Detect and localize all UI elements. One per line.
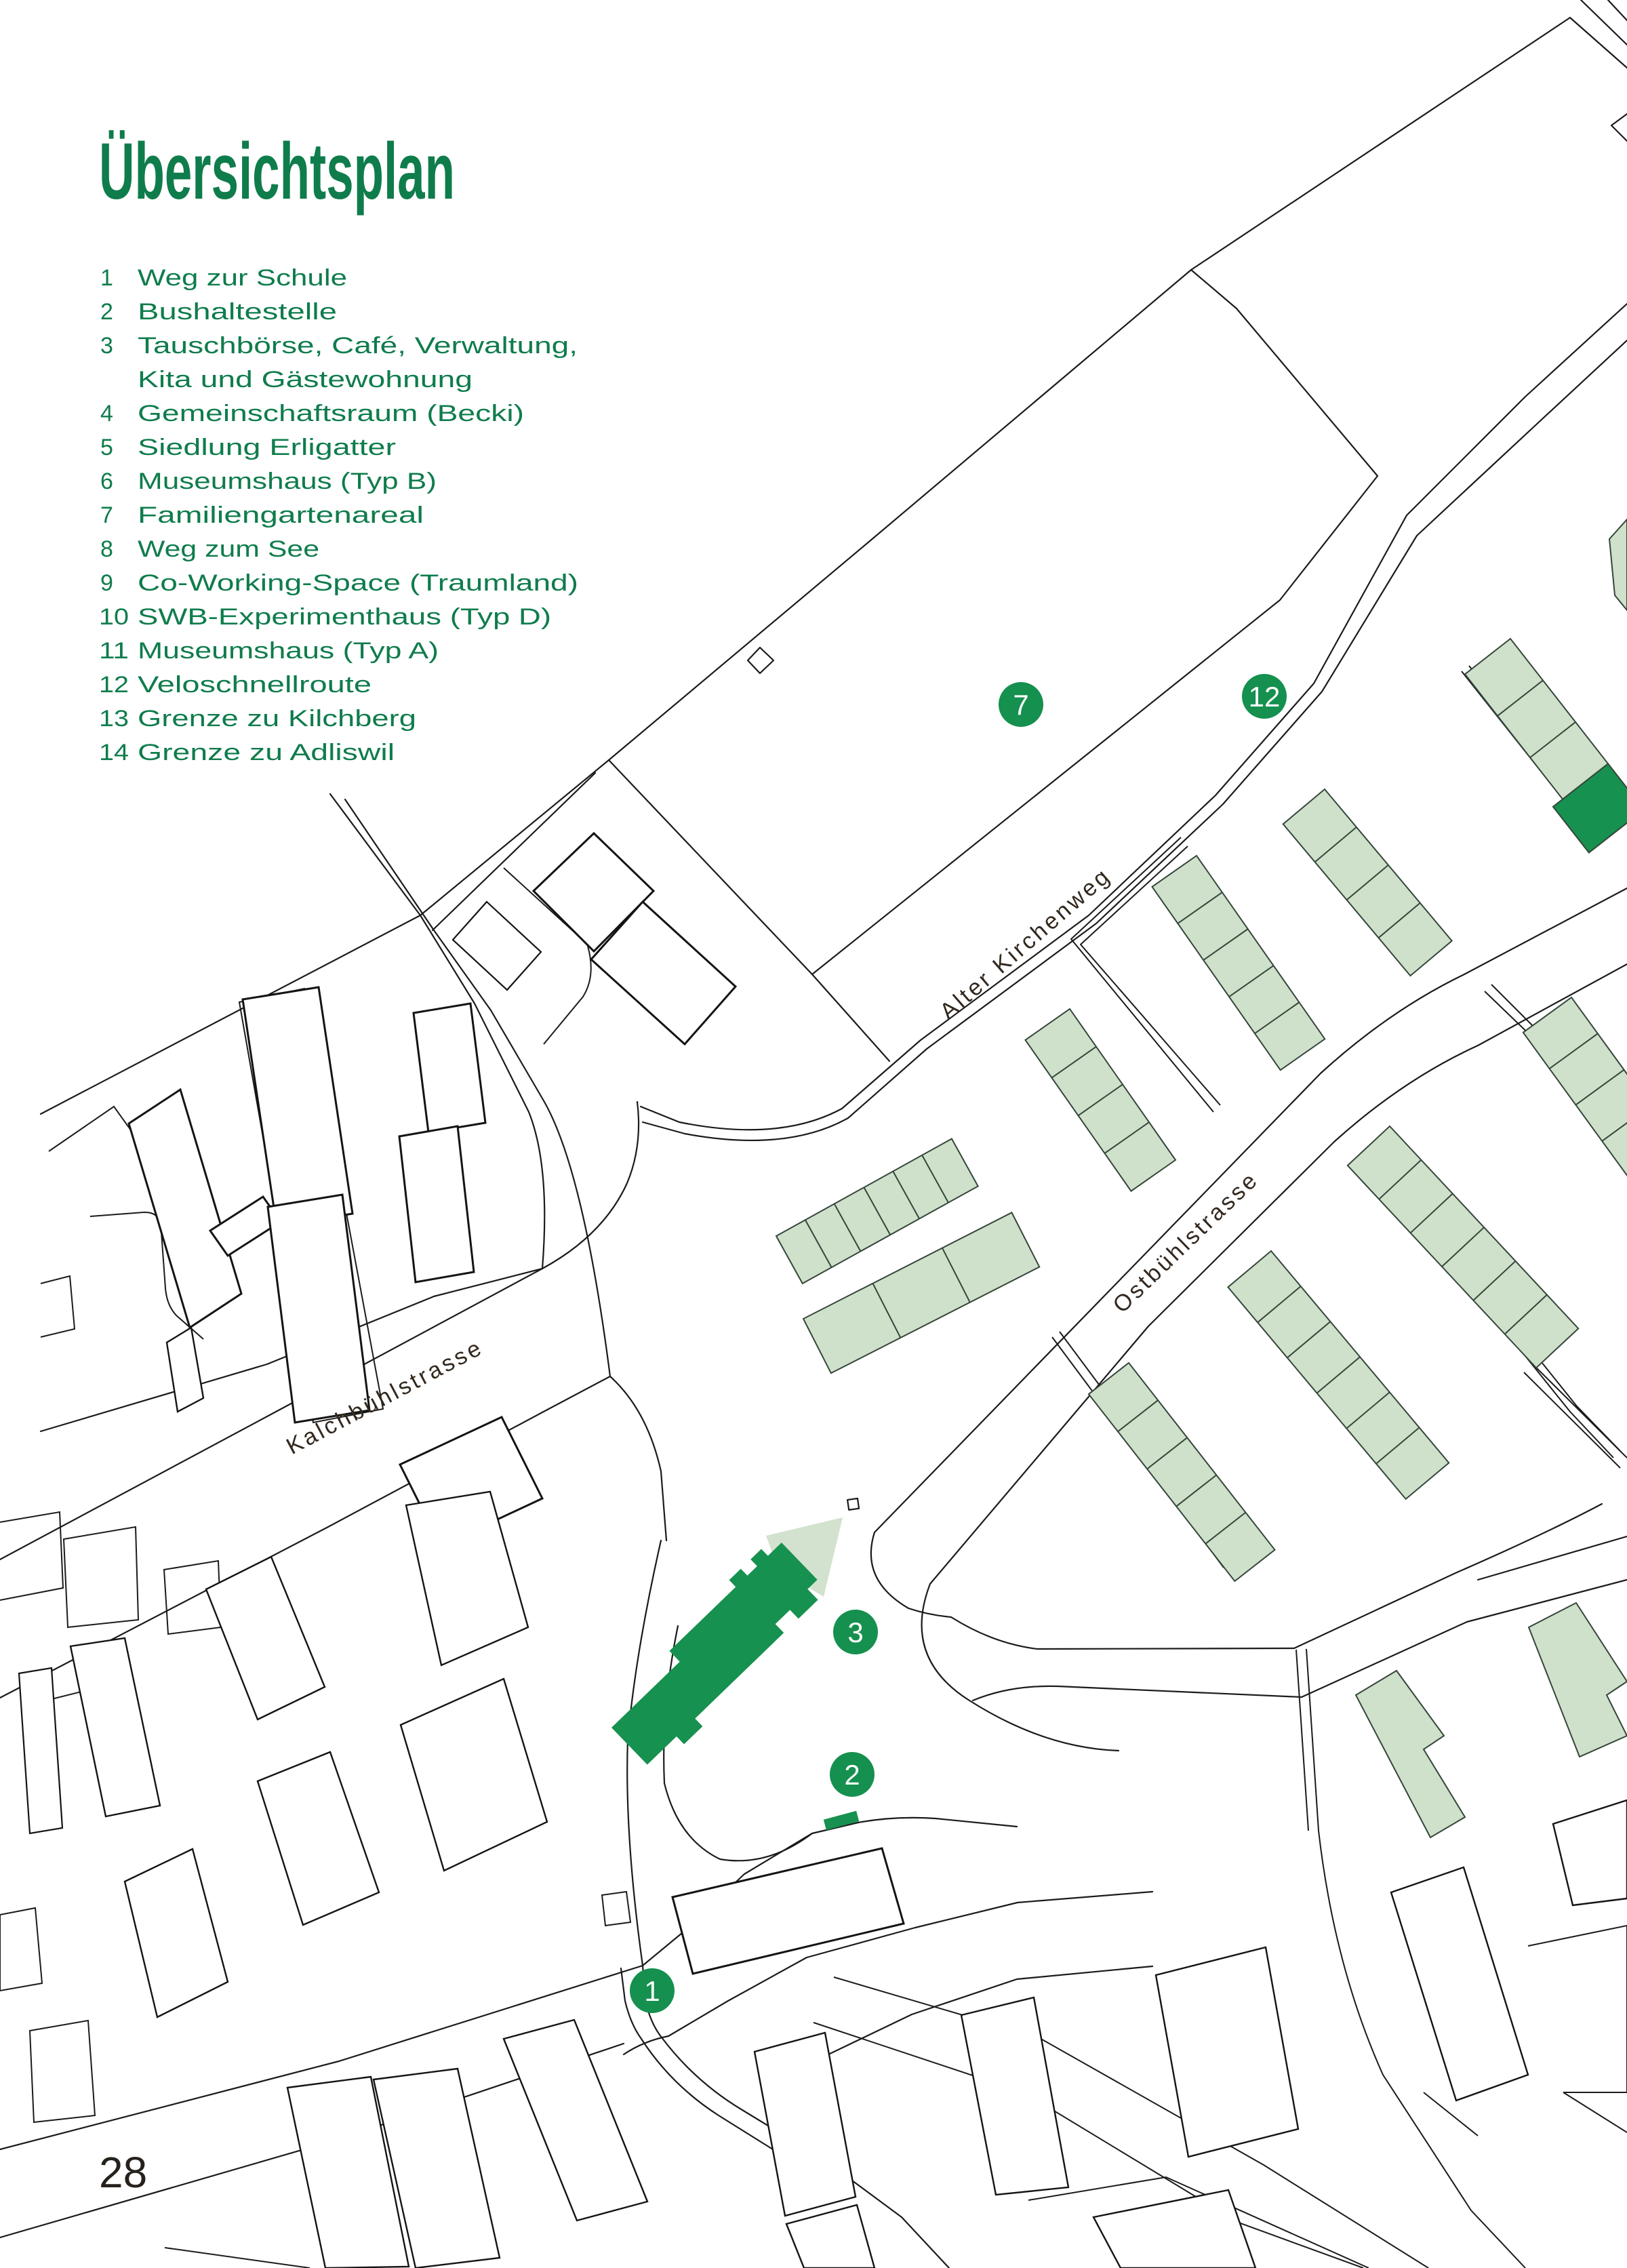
svg-text:Grenze zu Kilchberg: Grenze zu Kilchberg: [138, 706, 416, 732]
svg-text:Weg zur Schule: Weg zur Schule: [138, 265, 347, 291]
svg-text:7: 7: [1013, 689, 1028, 721]
svg-text:5: 5: [100, 435, 113, 460]
svg-text:SWB-Experimenthaus (Typ D): SWB-Experimenthaus (Typ D): [138, 604, 551, 630]
svg-text:10: 10: [99, 604, 129, 630]
svg-text:Co-Working-Space (Traumland): Co-Working-Space (Traumland): [138, 570, 578, 596]
svg-text:7: 7: [100, 502, 113, 528]
svg-text:9: 9: [100, 570, 113, 596]
svg-text:Weg zum See: Weg zum See: [138, 536, 319, 562]
svg-text:8: 8: [100, 536, 113, 562]
svg-text:Kita und Gästewohnung: Kita und Gästewohnung: [138, 367, 473, 393]
svg-text:11: 11: [99, 638, 129, 664]
svg-text:2: 2: [844, 1759, 860, 1791]
svg-text:Grenze zu Adliswil: Grenze zu Adliswil: [138, 740, 395, 765]
svg-text:Familiengartenareal: Familiengartenareal: [138, 502, 424, 528]
svg-text:12: 12: [1249, 681, 1281, 713]
svg-text:Museumshaus (Typ B): Museumshaus (Typ B): [138, 469, 437, 494]
svg-text:Gemeinschaftsraum (Becki): Gemeinschaftsraum (Becki): [138, 401, 524, 426]
svg-text:2: 2: [100, 299, 113, 325]
svg-text:Übersichtsplan: Übersichtsplan: [99, 127, 455, 216]
svg-text:28: 28: [99, 2148, 147, 2197]
svg-text:6: 6: [100, 469, 113, 494]
svg-text:3: 3: [100, 333, 113, 359]
svg-text:1: 1: [100, 265, 113, 291]
svg-text:4: 4: [100, 401, 113, 426]
svg-text:Tauschbörse, Café, Verwaltung,: Tauschbörse, Café, Verwaltung,: [138, 333, 578, 359]
svg-text:Siedlung Erligatter: Siedlung Erligatter: [138, 435, 396, 460]
svg-text:12: 12: [99, 672, 129, 698]
svg-text:Museumshaus (Typ A): Museumshaus (Typ A): [138, 638, 439, 664]
svg-text:Bushaltestelle: Bushaltestelle: [138, 299, 337, 325]
svg-text:14: 14: [99, 740, 129, 765]
svg-text:13: 13: [99, 706, 129, 732]
svg-text:Veloschnellroute: Veloschnellroute: [138, 672, 371, 698]
svg-text:1: 1: [644, 1975, 660, 2007]
svg-text:3: 3: [847, 1616, 863, 1648]
